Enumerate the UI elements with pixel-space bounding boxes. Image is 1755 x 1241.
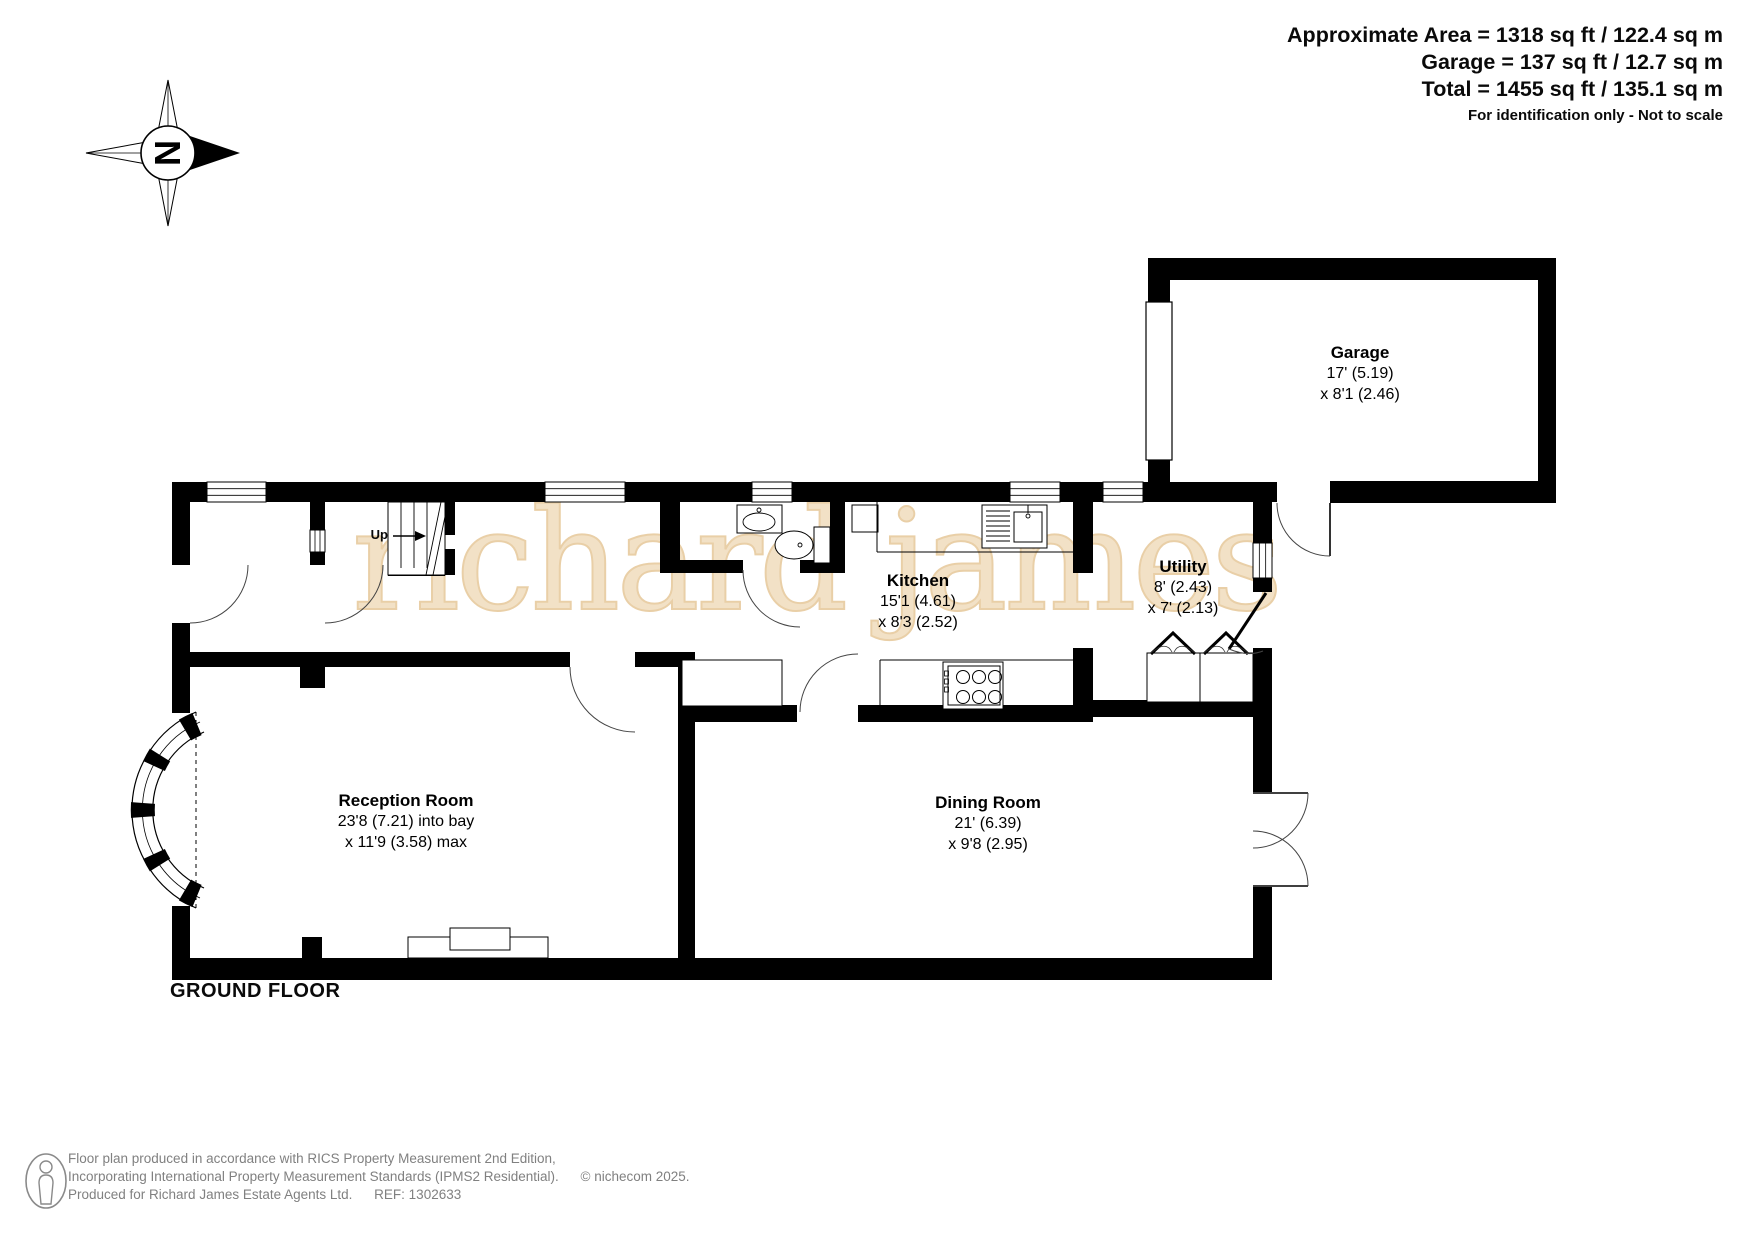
bay-window-mullion — [185, 890, 197, 896]
person-icon-body — [39, 1175, 53, 1204]
dining-room-label: Dining Room 21' (6.39) x 9'8 (2.95) — [935, 792, 1041, 855]
wall-segment — [300, 667, 325, 688]
front-door-swing — [190, 565, 248, 623]
reception-room-dim2: x 11'9 (3.58) max — [338, 832, 474, 853]
wall-segment — [172, 482, 190, 565]
dining-room-dim2: x 9'8 (2.95) — [935, 834, 1041, 855]
wall-segment — [310, 552, 325, 565]
kitchen-name: Kitchen — [878, 570, 958, 591]
garage-dim1: 17' (5.19) — [1320, 363, 1400, 384]
compass-north-letter: N — [147, 140, 188, 166]
garage-door — [1146, 302, 1172, 460]
floor-plan-page: richard james N Approximate Area = 1318 … — [0, 0, 1755, 1241]
footer-line2: Incorporating International Property Mea… — [68, 1168, 690, 1186]
utility-dim1: 8' (2.43) — [1148, 577, 1219, 598]
total-area-line: Total = 1455 sq ft / 135.1 sq m — [1023, 76, 1723, 103]
french-door-swing — [1253, 831, 1308, 886]
wc-door-swing — [743, 570, 800, 627]
wall-segment — [172, 623, 190, 713]
wall-segment — [302, 937, 322, 958]
toilet-bowl — [775, 531, 813, 559]
kitchen-dim2: x 8'3 (2.52) — [878, 612, 958, 633]
utility-dim2: x 7' (2.13) — [1148, 598, 1219, 619]
reception-room-dim1: 23'8 (7.21) into bay — [338, 811, 474, 832]
side-door-swing — [1277, 503, 1330, 556]
area-summary: Approximate Area = 1318 sq ft / 122.4 sq… — [1023, 22, 1723, 126]
kitchen-door-swing — [800, 654, 858, 712]
wall-segment — [172, 958, 1272, 980]
wall-segment — [1253, 887, 1272, 958]
kitchen-sink-bowl — [1014, 512, 1042, 542]
garage-name: Garage — [1320, 342, 1400, 363]
wall-segment — [660, 560, 743, 573]
wall-segment — [1253, 648, 1272, 792]
garage-label: Garage 17' (5.19) x 8'1 (2.46) — [1320, 342, 1400, 405]
person-icon — [26, 1154, 66, 1208]
footer-ref: REF: 1302633 — [374, 1187, 461, 1202]
wall-segment — [310, 502, 325, 530]
toilet-cistern — [814, 527, 830, 563]
garage-dim2: x 8'1 (2.46) — [1320, 384, 1400, 405]
kitchen-dim1: 15'1 (4.61) — [878, 591, 958, 612]
utility-appliance — [1147, 653, 1200, 702]
wall-segment — [1538, 258, 1556, 503]
wall-segment — [1073, 648, 1093, 722]
back-door-leaf — [1229, 593, 1266, 649]
wall-segment — [1060, 482, 1103, 502]
wall-segment — [445, 549, 455, 575]
utility-label: Utility 8' (2.43) x 7' (2.13) — [1148, 556, 1219, 619]
hob-inner — [948, 666, 1000, 705]
window — [1253, 543, 1272, 578]
wall-segment — [1253, 502, 1272, 543]
window — [545, 482, 625, 502]
window — [207, 482, 266, 502]
footer-produced-for: Produced for Richard James Estate Agents… — [68, 1187, 352, 1202]
kitchen-counter-unit — [682, 660, 782, 706]
reception-room-name: Reception Room — [338, 790, 474, 811]
bay-window-mullion — [154, 854, 160, 865]
window — [310, 530, 325, 552]
wall-segment — [445, 502, 455, 535]
person-icon-head — [40, 1161, 52, 1173]
window — [1103, 482, 1143, 502]
reception-door-swing — [570, 667, 635, 732]
utility-appliance — [1200, 653, 1253, 702]
approximate-area-line: Approximate Area = 1318 sq ft / 122.4 sq… — [1023, 22, 1723, 49]
appliance-door-chevron — [1204, 633, 1248, 654]
wall-segment — [266, 482, 545, 502]
kitchen-label: Kitchen 15'1 (4.61) x 8'3 (2.52) — [878, 570, 958, 633]
dining-room-dim1: 21' (6.39) — [935, 813, 1041, 834]
wall-segment — [1148, 258, 1556, 280]
bay-window-mullion — [154, 755, 160, 766]
window — [1010, 482, 1060, 502]
wall-segment — [1073, 502, 1093, 573]
stairs-up-label: Up — [350, 527, 388, 542]
french-door-swing — [1253, 793, 1308, 848]
garage-area-line: Garage = 137 sq ft / 12.7 sq m — [1023, 49, 1723, 76]
footer-copyright: © nichecom 2025. — [581, 1169, 690, 1184]
bay-window-mullion — [185, 724, 197, 730]
porch-door-swing — [325, 565, 383, 623]
wall-segment — [830, 502, 845, 573]
dining-room-name: Dining Room — [935, 792, 1041, 813]
fireplace — [450, 928, 510, 950]
appliance-door-chevron — [1151, 633, 1195, 654]
reception-room-label: Reception Room 23'8 (7.21) into bay x 11… — [338, 790, 474, 853]
kitchen-cabinet — [852, 505, 878, 532]
wall-segment — [1330, 481, 1556, 503]
utility-name: Utility — [1148, 556, 1219, 577]
footer-line1: Floor plan produced in accordance with R… — [68, 1150, 690, 1168]
footer-line3: Produced for Richard James Estate Agents… — [68, 1186, 690, 1204]
wall-segment — [792, 482, 1010, 502]
wall-segment — [660, 502, 680, 565]
wall-segment — [1253, 578, 1272, 592]
footer-ipms-text: Incorporating International Property Mea… — [68, 1169, 559, 1184]
floor-title: GROUND FLOOR — [170, 980, 340, 1003]
wall-segment — [190, 652, 570, 667]
identification-note: For identification only - Not to scale — [1023, 106, 1723, 126]
wall-segment — [1093, 700, 1253, 717]
window — [752, 482, 792, 502]
footer: Floor plan produced in accordance with R… — [68, 1150, 690, 1204]
wall-segment — [625, 482, 752, 502]
wall-segment — [693, 705, 797, 722]
